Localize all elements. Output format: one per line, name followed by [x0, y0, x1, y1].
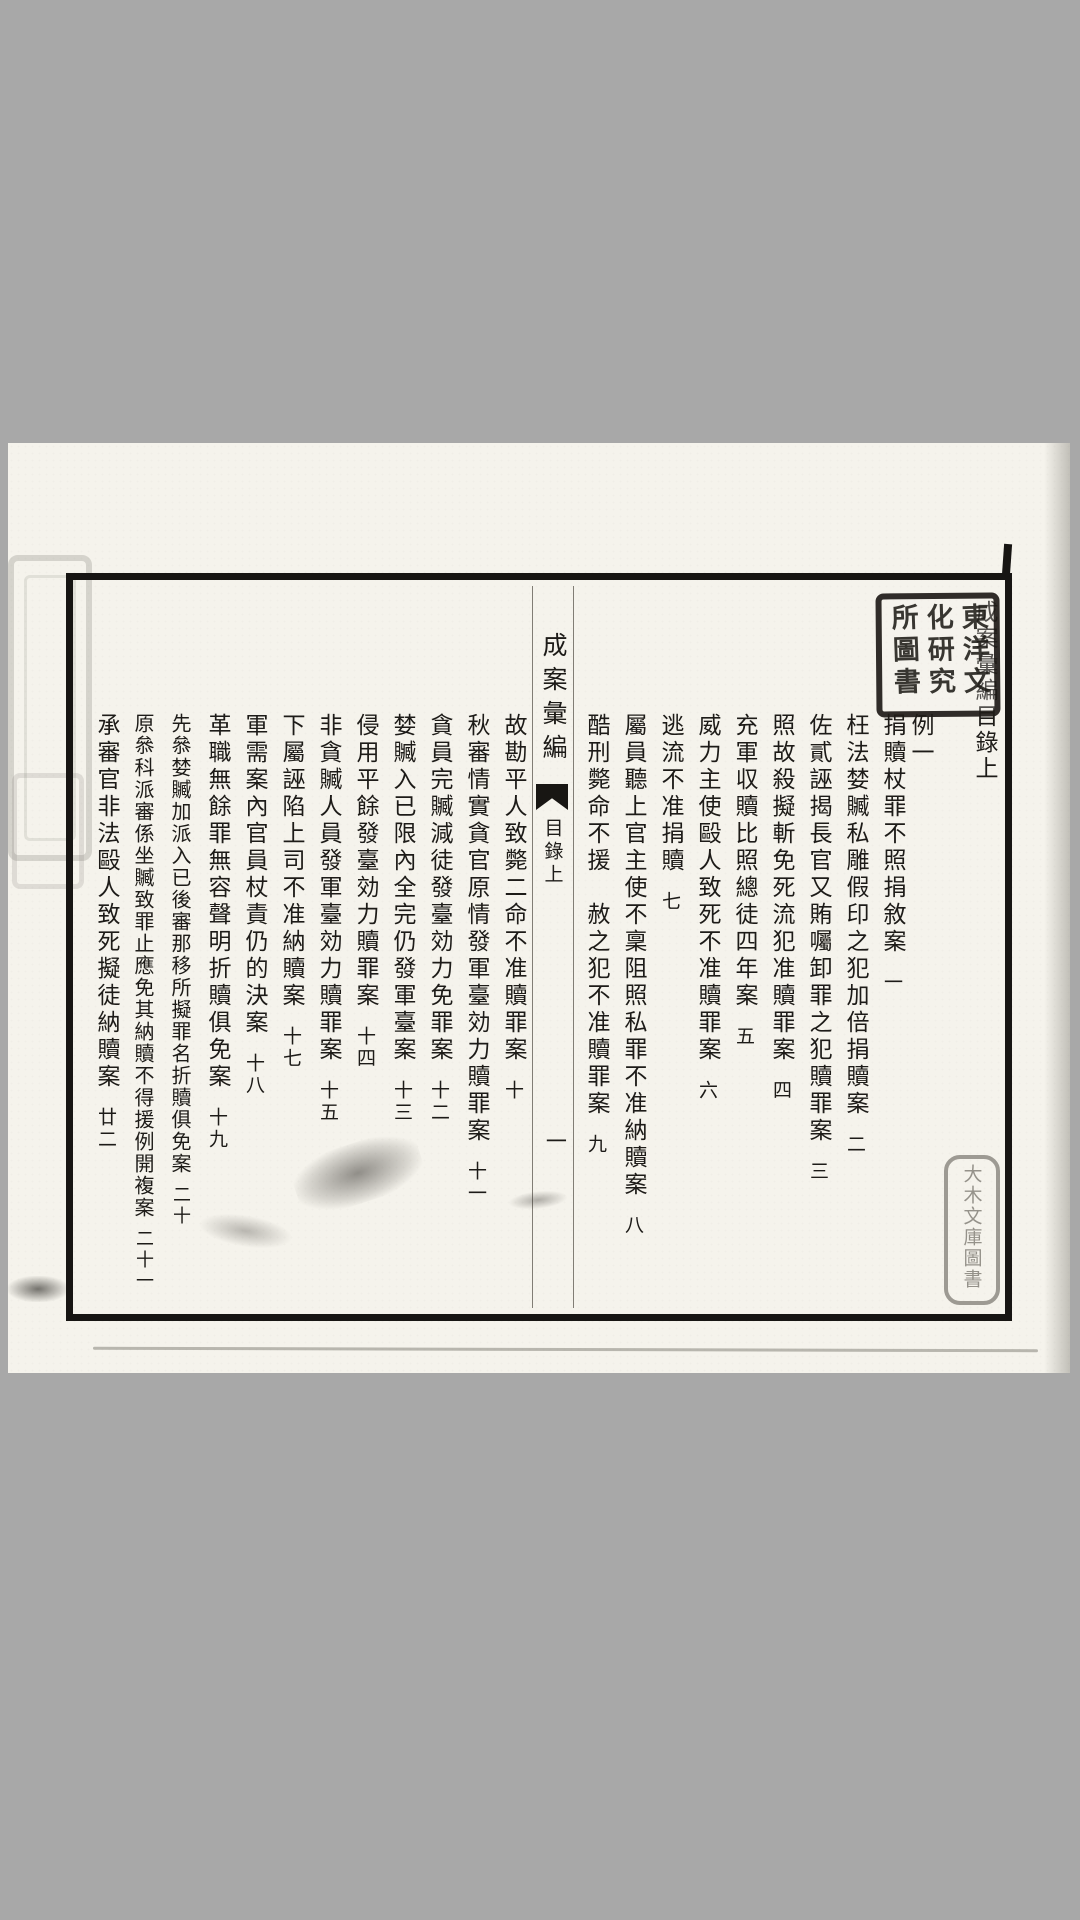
case-number: 十八 — [243, 1053, 265, 1097]
screen: 成案彙編目錄上 例一 捐贖杖罪不照捐敘案一 枉法婪贓私雕假印之犯加倍捐贖案二 佐… — [0, 0, 1080, 1920]
case-title: 下屬誣陷上司不准納贖案 — [278, 713, 304, 1010]
case-number: 二十一 — [133, 1229, 154, 1292]
case-title: 承審官非法毆人致死擬徒納贖案 — [93, 713, 119, 1091]
case-number: 七 — [659, 891, 681, 913]
case-title: 婪贓入已限內全完仍發軍臺案 — [389, 713, 415, 1064]
case-number: 十二 — [428, 1080, 450, 1124]
case-number: 十三 — [391, 1080, 413, 1124]
case-number: 一 — [881, 972, 903, 994]
case-title: 非貪贓人員發軍臺効力贖罪案 — [315, 713, 341, 1064]
case-title: 貪員完贓減徒發臺効力免罪案 — [426, 713, 452, 1064]
case-entry-column: 非貪贓人員發軍臺効力贖罪案十五 — [313, 713, 343, 1308]
case-title: 革職無餘罪無容聲明折贖俱免案 — [204, 713, 230, 1091]
case-entry-column: 佐貳誣揭長官又賄囑卸罪之犯贖罪案三 — [803, 713, 833, 1308]
case-entry-column: 原叅科派審係坐贓致罪止應免其納贖不得援例開複案二十一 — [128, 713, 158, 1308]
page-bottom-edge — [93, 1347, 1038, 1352]
leaf-number: 一 — [540, 1130, 570, 1151]
case-entry-column: 照故殺擬斬免死流犯准贖罪案四 — [766, 713, 796, 1308]
case-entry-column: 先叅婪贓加派入已後審那移所擬罪名折贖俱免案二十 — [165, 713, 195, 1308]
case-entry-column: 充軍収贖比照總徒四年案五 — [729, 713, 759, 1308]
case-title: 秋審情實貪官原情發軍臺効力贖罪案 — [463, 713, 489, 1145]
case-entry-column: 下屬誣陷上司不准納贖案十七 — [276, 713, 306, 1308]
case-number: 二 — [844, 1134, 866, 1156]
case-title: 酷刑斃命不援 赦之犯不准贖罪案 — [583, 713, 609, 1118]
case-entry-column: 貪員完贓減徒發臺効力免罪案十二 — [424, 713, 454, 1308]
case-number: 八 — [622, 1215, 644, 1237]
case-number: 十九 — [206, 1107, 228, 1151]
case-number: 六 — [696, 1080, 718, 1102]
fold-book-title: 成案彙編 — [535, 632, 571, 768]
case-entry-column: 酷刑斃命不援 赦之犯不准贖罪案九 — [581, 713, 611, 1308]
ink-smudge — [8, 1276, 68, 1302]
case-number: 十四 — [354, 1026, 376, 1070]
case-title: 照故殺擬斬免死流犯准贖罪案 — [768, 713, 794, 1064]
case-number: 五 — [733, 1026, 755, 1048]
section-label: 例一 — [909, 713, 935, 1308]
case-number: 十 — [502, 1080, 524, 1102]
case-title: 屬員聽上官主使不稟阻照私罪不准納贖案 — [620, 713, 646, 1199]
case-number: 九 — [585, 1134, 607, 1156]
case-entry-column: 婪贓入已限內全完仍發軍臺案十三 — [387, 713, 417, 1308]
case-entry-column: 逃流不准捐贖七 — [655, 713, 685, 1308]
case-title: 原叅科派審係坐贓致罪止應免其納贖不得援例開複案 — [131, 713, 155, 1219]
case-title: 先叅婪贓加派入已後審那移所擬罪名折贖俱免案 — [168, 713, 192, 1175]
collection-seal: 大木文庫圖書 — [944, 1155, 1000, 1305]
case-number: 十一 — [465, 1161, 487, 1205]
library-seal-column: 所圖書 — [885, 603, 923, 708]
case-number: 廿二 — [95, 1107, 117, 1151]
case-title: 充軍収贖比照總徒四年案 — [731, 713, 757, 1010]
case-entry-column: 秋審情實貪官原情發軍臺効力贖罪案十一 — [461, 713, 491, 1308]
fishtail-mark-icon — [536, 784, 568, 810]
case-entry-column: 屬員聽上官主使不稟阻照私罪不准納贖案八 — [618, 713, 648, 1308]
case-title: 捐贖杖罪不照捐敘案 — [879, 713, 905, 956]
page-right-edge — [1044, 443, 1070, 1373]
fold-section-label: 目錄上 — [540, 818, 567, 887]
case-number: 十七 — [280, 1026, 302, 1070]
case-entry-column: 威力主使毆人致死不准贖罪案六 — [692, 713, 722, 1308]
case-title: 軍需案內官員杖責仍的決案 — [241, 713, 267, 1037]
library-seal-column: 東洋文 — [954, 602, 992, 707]
case-number: 二十 — [170, 1185, 191, 1227]
section-label-text: 例一 — [907, 713, 933, 767]
case-entry-column: 故勘平人致斃二命不准贖罪案十 — [498, 713, 528, 1308]
scanned-page: 成案彙編目錄上 例一 捐贖杖罪不照捐敘案一 枉法婪贓私雕假印之犯加倍捐贖案二 佐… — [8, 443, 1070, 1373]
case-title: 故勘平人致斃二命不准贖罪案 — [500, 713, 526, 1064]
case-entry-column: 承審官非法毆人致死擬徒納贖案廿二 — [91, 713, 121, 1308]
case-title: 枉法婪贓私雕假印之犯加倍捐贖案 — [842, 713, 868, 1118]
case-title: 侵用平餘發臺効力贖罪案 — [352, 713, 378, 1010]
case-number: 四 — [770, 1080, 792, 1102]
case-title: 佐貳誣揭長官又賄囑卸罪之犯贖罪案 — [805, 713, 831, 1145]
case-number: 十五 — [317, 1080, 339, 1124]
collection-seal-text: 大木文庫圖書 — [959, 1164, 986, 1301]
case-entry-column: 捐贖杖罪不照捐敘案一 — [877, 713, 907, 1308]
case-title: 威力主使毆人致死不准贖罪案 — [694, 713, 720, 1064]
case-title: 逃流不准捐贖 — [657, 713, 683, 875]
case-number: 三 — [807, 1161, 829, 1183]
library-seal: 東洋文 化研究 所圖書 — [875, 592, 1000, 717]
case-entry-column: 枉法婪贓私雕假印之犯加倍捐贖案二 — [840, 713, 870, 1308]
case-entry-column: 侵用平餘發臺効力贖罪案十四 — [350, 713, 380, 1308]
frame-corner-stub — [1002, 544, 1012, 576]
library-seal-column: 化研究 — [919, 602, 957, 707]
